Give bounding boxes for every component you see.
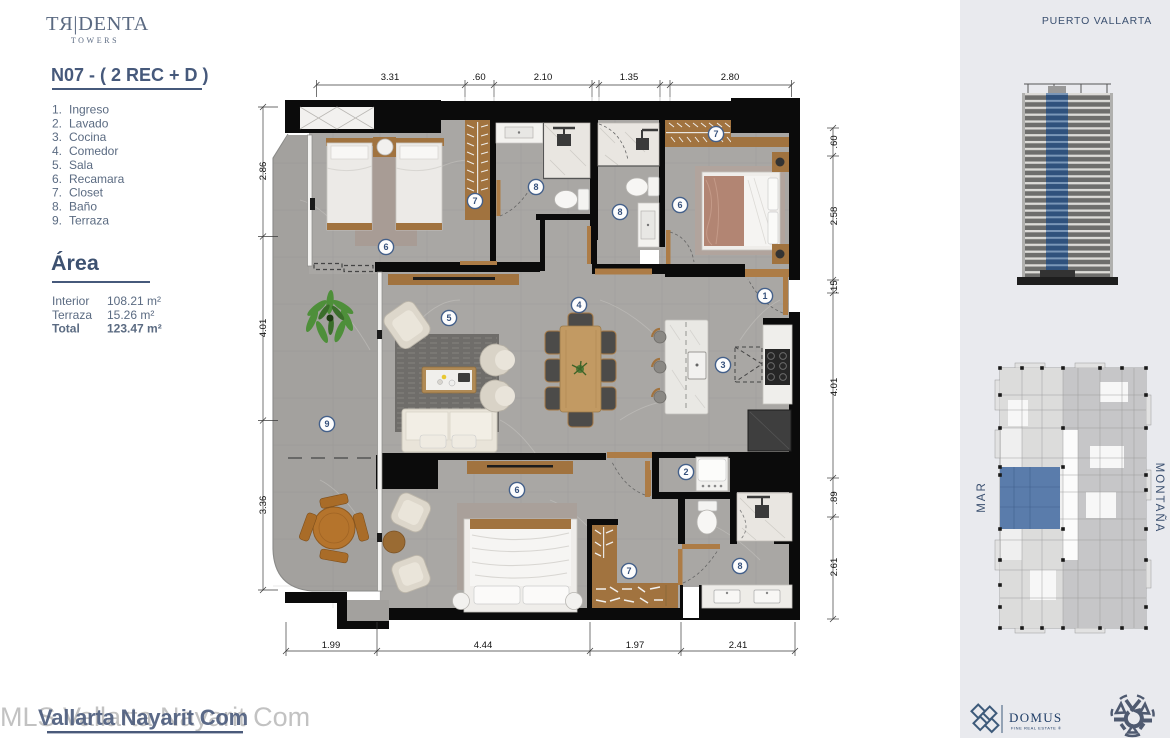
svg-text:9.: 9. xyxy=(52,213,62,227)
svg-text:2.10: 2.10 xyxy=(534,72,553,83)
svg-text:5: 5 xyxy=(446,313,451,323)
svg-text:7.: 7. xyxy=(52,186,62,200)
svg-text:3.31: 3.31 xyxy=(381,72,400,83)
svg-text:.89: .89 xyxy=(829,491,840,504)
svg-text:2.41: 2.41 xyxy=(729,640,748,651)
svg-text:Cocina: Cocina xyxy=(69,130,107,144)
svg-text:.15: .15 xyxy=(829,280,840,293)
svg-text:4.01: 4.01 xyxy=(829,378,840,397)
svg-text:8: 8 xyxy=(617,207,622,217)
svg-text:FINE REAL ESTATE ®: FINE REAL ESTATE ® xyxy=(1011,726,1062,731)
svg-text:1: 1 xyxy=(762,291,767,301)
svg-text:1.35: 1.35 xyxy=(620,72,639,83)
svg-text:.60: .60 xyxy=(829,135,840,148)
svg-text:8: 8 xyxy=(737,561,742,571)
svg-text:15.26 m²: 15.26 m² xyxy=(107,308,154,322)
svg-text:Lavado: Lavado xyxy=(69,116,109,130)
svg-text:Closet: Closet xyxy=(69,186,104,200)
svg-text:MAR: MAR xyxy=(976,481,988,513)
svg-text:3.36: 3.36 xyxy=(258,496,269,515)
svg-text:123.47 m²: 123.47 m² xyxy=(107,322,162,336)
svg-text:Área: Área xyxy=(51,250,100,275)
svg-text:N07 - ( 2 REC + D ): N07 - ( 2 REC + D ) xyxy=(51,65,209,85)
svg-text:2: 2 xyxy=(683,467,688,477)
svg-text:108.21 m²: 108.21 m² xyxy=(107,294,161,308)
svg-text:3: 3 xyxy=(720,360,725,370)
svg-text:6: 6 xyxy=(383,242,388,252)
svg-text:TOWERS: TOWERS xyxy=(71,36,119,45)
svg-text:2.61: 2.61 xyxy=(829,558,840,577)
svg-text:Vallarta Nayarit Com: Vallarta Nayarit Com xyxy=(38,705,248,730)
svg-text:Interior: Interior xyxy=(52,294,89,308)
svg-text:DOMUS: DOMUS xyxy=(1009,710,1062,725)
svg-text:4.: 4. xyxy=(52,144,62,158)
svg-text:1.97: 1.97 xyxy=(626,640,645,651)
svg-text:Total: Total xyxy=(52,322,80,336)
svg-text:Ingreso: Ingreso xyxy=(69,103,109,117)
svg-text:3.: 3. xyxy=(52,130,62,144)
svg-text:.60: .60 xyxy=(472,72,485,83)
svg-text:Terraza: Terraza xyxy=(52,308,92,322)
svg-text:4.44: 4.44 xyxy=(474,640,493,651)
svg-text:4.01: 4.01 xyxy=(258,319,269,338)
svg-text:7: 7 xyxy=(626,566,631,576)
svg-text:6: 6 xyxy=(514,485,519,495)
svg-text:7: 7 xyxy=(713,129,718,139)
svg-text:Recamara: Recamara xyxy=(69,172,125,186)
svg-text:1.: 1. xyxy=(52,103,62,117)
svg-text:2.58: 2.58 xyxy=(829,207,840,226)
svg-text:6.: 6. xyxy=(52,172,62,186)
svg-text:2.80: 2.80 xyxy=(721,72,740,83)
svg-text:MONTAÑA: MONTAÑA xyxy=(1153,463,1166,534)
svg-text:2.: 2. xyxy=(52,116,62,130)
svg-text:6: 6 xyxy=(677,200,682,210)
svg-text:PUERTO VALLARTA: PUERTO VALLARTA xyxy=(1042,15,1152,27)
svg-text:2.86: 2.86 xyxy=(258,162,269,181)
svg-text:9: 9 xyxy=(324,419,329,429)
svg-text:Comedor: Comedor xyxy=(69,144,118,158)
svg-text:Baño: Baño xyxy=(69,199,97,213)
svg-text:Terraza: Terraza xyxy=(69,213,109,227)
svg-text:4: 4 xyxy=(576,300,581,310)
svg-text:Sala: Sala xyxy=(69,158,93,172)
svg-text:8: 8 xyxy=(533,182,538,192)
svg-text:5.: 5. xyxy=(52,158,62,172)
svg-text:1.99: 1.99 xyxy=(322,640,341,651)
svg-text:8.: 8. xyxy=(52,199,62,213)
svg-text:TЯ|DENTA: TЯ|DENTA xyxy=(46,13,149,35)
svg-text:7: 7 xyxy=(472,196,477,206)
